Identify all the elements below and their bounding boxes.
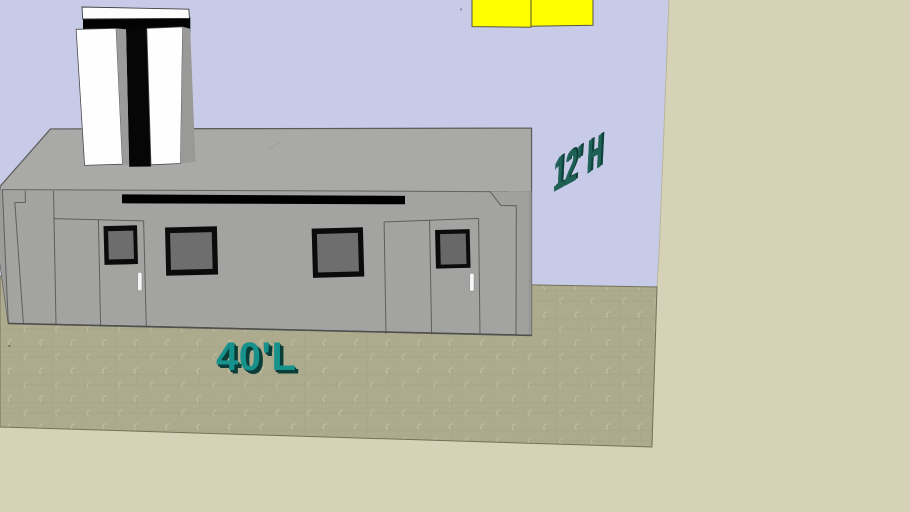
svg-text:40'L: 40'L — [216, 335, 296, 379]
